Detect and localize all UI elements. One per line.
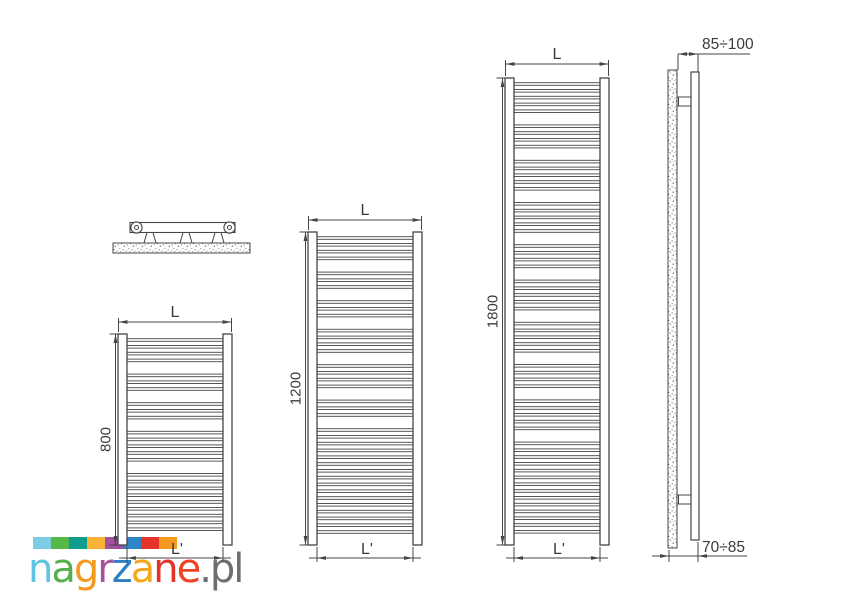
rung — [513, 378, 601, 381]
dimension-arrow — [317, 556, 326, 560]
rung — [316, 372, 414, 375]
rung — [126, 474, 224, 477]
bracket-leg — [221, 233, 224, 244]
rung — [126, 438, 224, 441]
rung — [513, 531, 601, 534]
rung — [316, 314, 414, 317]
rung — [513, 343, 601, 346]
dimension-arrow — [506, 62, 515, 66]
rung — [316, 350, 414, 353]
rung — [316, 449, 414, 452]
rung — [513, 365, 601, 368]
rung — [316, 308, 414, 311]
bracket-leg — [180, 233, 183, 244]
collector-left — [505, 78, 514, 545]
rung — [513, 490, 601, 493]
rung — [513, 174, 601, 177]
rung — [126, 521, 224, 524]
dimension-arrow — [514, 556, 523, 560]
rung — [316, 429, 414, 432]
pipe-union-center — [135, 226, 139, 230]
rung — [316, 517, 414, 520]
radiator-side-view: 85÷10070÷85 — [652, 36, 754, 562]
rung — [513, 442, 601, 445]
rung — [513, 336, 601, 339]
dimension-arrow — [600, 62, 609, 66]
rung — [513, 245, 601, 248]
rung — [126, 487, 224, 490]
rung — [513, 476, 601, 479]
rung — [126, 445, 224, 448]
rung — [513, 223, 601, 226]
rung — [513, 145, 601, 148]
rung — [316, 250, 414, 253]
rung — [126, 346, 224, 349]
rung — [513, 503, 601, 506]
collector-left — [118, 334, 127, 545]
radiator-profile — [691, 72, 699, 540]
rung — [316, 400, 414, 403]
rung — [316, 343, 414, 346]
height-dimension-label: 1200 — [288, 372, 305, 405]
rung — [513, 301, 601, 304]
dimension-arrow — [660, 554, 669, 558]
collector-left — [308, 232, 317, 545]
rung — [513, 469, 601, 472]
bracket-leg — [189, 233, 192, 244]
rung — [513, 90, 601, 93]
rung — [513, 350, 601, 353]
rung — [513, 463, 601, 466]
dimension-arrow — [689, 52, 698, 56]
rung — [513, 329, 601, 332]
collector-right — [413, 232, 422, 545]
wall-section — [668, 70, 677, 548]
rung — [513, 414, 601, 417]
pipe-union-center — [228, 226, 232, 230]
rung — [316, 237, 414, 240]
rung — [513, 449, 601, 452]
rung — [126, 359, 224, 362]
dimension-arrow — [309, 218, 318, 222]
rung — [316, 504, 414, 507]
rung — [126, 508, 224, 511]
wall-distance-top-label: 85÷100 — [702, 36, 754, 53]
rung — [126, 381, 224, 384]
radiator-1800-front-view: L1800L' — [485, 46, 610, 562]
rung — [316, 531, 414, 534]
rung — [513, 280, 601, 283]
rung — [316, 378, 414, 381]
rung — [513, 371, 601, 374]
height-dimension-label: 1800 — [485, 295, 502, 328]
rung — [513, 322, 601, 325]
rung — [126, 416, 224, 419]
rung — [513, 110, 601, 113]
bottom-width-dimension-label: L' — [553, 541, 565, 558]
rung — [513, 524, 601, 527]
rung — [126, 431, 224, 434]
rung — [316, 524, 414, 527]
rung — [513, 427, 601, 430]
rung — [513, 139, 601, 142]
rung — [126, 374, 224, 377]
rung — [513, 407, 601, 410]
dimension-arrow — [127, 556, 136, 560]
rung — [513, 456, 601, 459]
rung — [126, 352, 224, 355]
rung — [316, 272, 414, 275]
rung — [316, 463, 414, 466]
rung — [513, 230, 601, 233]
rung — [316, 442, 414, 445]
rung — [513, 96, 601, 99]
bracket-leg — [212, 233, 215, 244]
rung — [316, 436, 414, 439]
rung — [513, 103, 601, 106]
dimension-arrow — [223, 320, 232, 324]
rung — [316, 456, 414, 459]
rung — [316, 414, 414, 417]
dimension-arrow — [501, 78, 505, 87]
rung — [513, 181, 601, 184]
width-dimension-label: L — [553, 46, 562, 63]
rung — [316, 257, 414, 260]
dimension-arrow — [404, 556, 413, 560]
rung — [316, 483, 414, 486]
collector-right — [223, 334, 232, 545]
radiator-top-view — [113, 222, 250, 253]
rung — [126, 480, 224, 483]
rung — [513, 83, 601, 86]
rung — [513, 307, 601, 310]
rung — [316, 490, 414, 493]
width-dimension-label: L — [171, 304, 180, 321]
rung — [513, 265, 601, 268]
rung — [316, 329, 414, 332]
rung — [126, 388, 224, 391]
rung — [513, 385, 601, 388]
wall-section — [113, 243, 250, 253]
rung — [513, 125, 601, 128]
radiator-800-front-view: L800L' — [98, 304, 233, 562]
rung — [316, 301, 414, 304]
rung — [126, 501, 224, 504]
rung — [513, 258, 601, 261]
rung — [513, 216, 601, 219]
rung — [126, 494, 224, 497]
rung — [513, 167, 601, 170]
rung — [316, 365, 414, 368]
rung — [316, 286, 414, 289]
rung — [126, 452, 224, 455]
rung — [513, 483, 601, 486]
rung — [513, 497, 601, 500]
wall-distance-bottom-label: 70÷85 — [702, 539, 745, 556]
rung — [513, 420, 601, 423]
dimension-arrow — [413, 218, 422, 222]
dimension-arrow — [114, 536, 118, 545]
dimension-arrow — [304, 536, 308, 545]
dimension-arrow — [304, 232, 308, 241]
rung — [513, 252, 601, 255]
rung — [513, 287, 601, 290]
bottom-width-dimension-label: L' — [171, 541, 183, 558]
bracket-leg — [144, 233, 147, 244]
dimension-arrow — [214, 556, 223, 560]
rung — [316, 336, 414, 339]
rung — [316, 244, 414, 247]
rung — [126, 514, 224, 517]
rung — [316, 279, 414, 282]
width-dimension-label: L — [361, 202, 370, 219]
bottom-width-dimension-label: L' — [361, 541, 373, 558]
rung — [126, 403, 224, 406]
rung — [126, 339, 224, 342]
rung — [513, 188, 601, 191]
rung — [513, 203, 601, 206]
rung — [513, 510, 601, 513]
dimension-arrow — [119, 320, 128, 324]
rung — [126, 528, 224, 531]
dimension-arrow — [114, 334, 118, 343]
technical-drawing: L800L' L1200L' L1800L' 85÷10070÷85 — [0, 0, 850, 600]
bracket-leg — [153, 233, 156, 244]
rung — [513, 209, 601, 212]
rung — [513, 160, 601, 163]
page: nagrzane.pl L800L' L1200L' L1800L' 85÷10… — [0, 0, 850, 600]
collector-right — [600, 78, 609, 545]
rung — [316, 476, 414, 479]
collector-tube-top — [130, 223, 235, 233]
rung — [316, 470, 414, 473]
rung — [126, 410, 224, 413]
rung — [513, 400, 601, 403]
dimension-arrow — [591, 556, 600, 560]
dimension-arrow — [678, 52, 687, 56]
rung — [316, 497, 414, 500]
rung — [513, 517, 601, 520]
dimension-arrow — [501, 536, 505, 545]
rung — [316, 407, 414, 410]
radiator-1200-front-view: L1200L' — [288, 202, 423, 562]
rung — [513, 294, 601, 297]
height-dimension-label: 800 — [98, 427, 115, 452]
rung — [316, 385, 414, 388]
rung — [126, 459, 224, 462]
rung — [316, 510, 414, 513]
rung — [513, 132, 601, 135]
